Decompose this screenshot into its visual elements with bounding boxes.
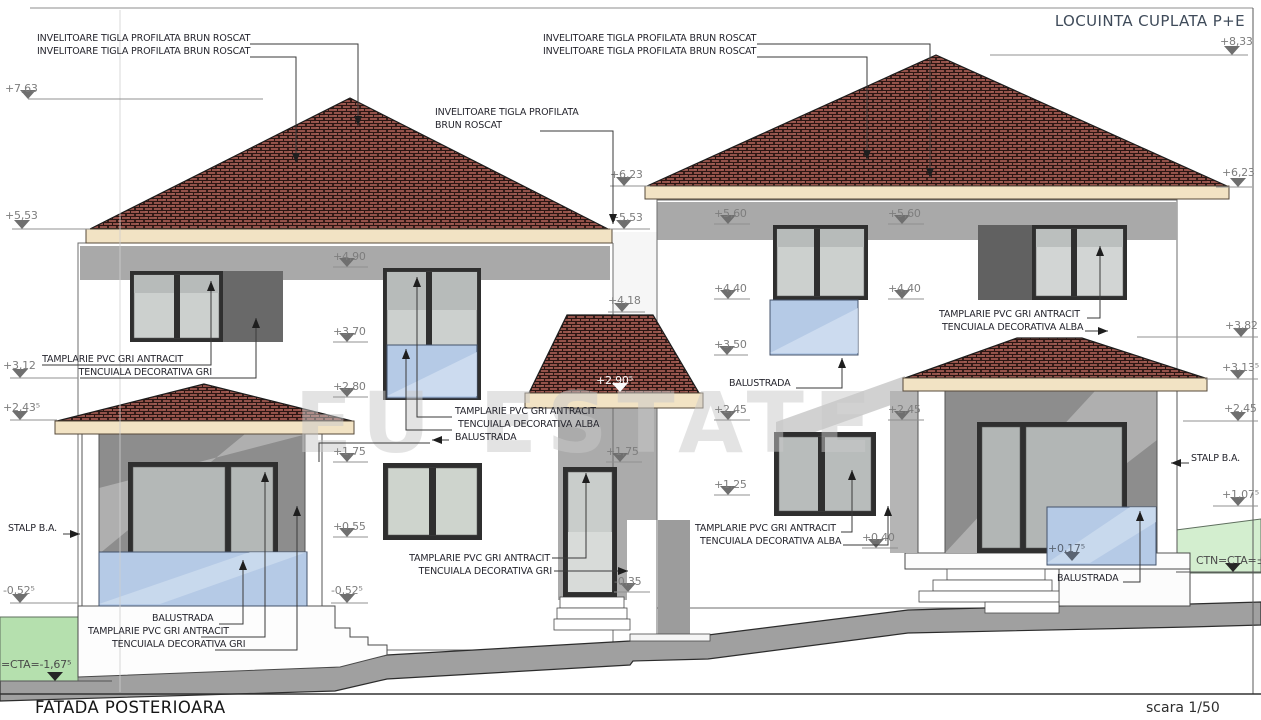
- level-value: +5,53: [5, 209, 38, 222]
- porch-post: [82, 434, 99, 606]
- gap-corner-shadow: [658, 520, 690, 637]
- level-value: +7,63: [5, 82, 38, 95]
- level-value: +5,60: [888, 207, 921, 220]
- annotation-text: TAMPLARIE PVC GRI ANTRACIT: [454, 406, 596, 417]
- annotation-text: BALUSTRADA: [729, 378, 791, 389]
- level-value: +2,90⁵: [596, 374, 633, 387]
- level-value: +4,40: [888, 282, 921, 295]
- annotation-text: TENCUIALA DECORATIVA GRI: [111, 639, 245, 650]
- annotation-text: TENCUIALA DECORATIVA GRI: [78, 367, 212, 378]
- door-glass-light: [568, 532, 612, 592]
- annotation-text: INVELITOARE TIGLA PROFILATA BRUN ROSCAT: [37, 33, 251, 44]
- level-value: +3,82: [1225, 319, 1258, 332]
- level-value: +3,50: [714, 338, 747, 351]
- step: [560, 597, 624, 608]
- porch-door-glass: [982, 427, 1020, 548]
- drawing-title: LOCUINTA CUPLATA P+E: [1055, 12, 1245, 30]
- level-value: +0,55: [333, 520, 366, 533]
- middle-rear-door: [563, 467, 617, 597]
- level-value: +6,23: [1222, 166, 1255, 179]
- level-value: +2,43⁵: [3, 401, 40, 414]
- level-value: +3,70: [333, 325, 366, 338]
- window-mullion: [174, 275, 180, 338]
- window-mullion: [1071, 229, 1077, 296]
- level-value: -0,52⁵: [3, 584, 35, 597]
- step: [933, 580, 1052, 591]
- porch-roof-eave-board: [903, 378, 1207, 391]
- level-value: =CTA=-1,67⁵: [1, 658, 71, 671]
- level-value: +1,75: [606, 445, 639, 458]
- annotation-text: TAMPLARIE PVC GRI ANTRACIT: [408, 553, 550, 564]
- porch-door-glass: [133, 467, 225, 561]
- level-value: +6,23: [610, 168, 643, 181]
- annotation-text: TENCUIALA DECORATIVA ALBA: [941, 322, 1084, 333]
- level-value: CTN=CTA=±: [1196, 554, 1261, 567]
- left-roof-eave-board: [86, 229, 612, 243]
- level-value: +2,45: [1224, 402, 1257, 415]
- annotation-text: INVELITOARE TIGLA PROFILATA BRUN ROSCAT: [543, 46, 757, 57]
- annotation-text: STALP B.A.: [1191, 453, 1240, 464]
- level-value: +4,40: [714, 282, 747, 295]
- level-value: +0,40: [862, 531, 895, 544]
- annotation-text: STALP B.A.: [8, 523, 57, 534]
- window-mullion: [814, 229, 820, 296]
- window-glass-shade: [1036, 229, 1123, 247]
- step: [554, 619, 630, 630]
- level-value: +2,45: [888, 403, 921, 416]
- right-porch: [890, 338, 1207, 565]
- porch-post: [918, 391, 945, 553]
- level-value: +1,75: [333, 445, 366, 458]
- annotation-text: INVELITOARE TIGLA PROFILATA BRUN ROSCAT: [543, 33, 757, 44]
- annotation-text: TAMPLARIE PVC GRI ANTRACIT: [938, 309, 1080, 320]
- annotation-text: BRUN ROSCAT: [435, 120, 502, 131]
- annotation-text: TENCUIALA DECORATIVA ALBA: [699, 536, 842, 547]
- middle-door-steps: [554, 597, 630, 630]
- annotation-text: TAMPLARIE PVC GRI ANTRACIT: [694, 523, 836, 534]
- annotation-text: INVELITOARE TIGLA PROFILATA BRUN ROSCAT: [37, 46, 251, 57]
- level-value: -0,52⁵: [331, 584, 363, 597]
- step: [947, 569, 1045, 580]
- porch-post: [1157, 391, 1177, 553]
- dark-wall-recess: [223, 271, 283, 342]
- step: [985, 602, 1059, 613]
- view-name: FATADA POSTERIOARA: [35, 698, 226, 717]
- level-value: +0,17⁵: [1048, 542, 1085, 555]
- level-value: +5,60: [714, 207, 747, 220]
- annotation-text: INVELITOARE TIGLA PROFILATA: [435, 107, 579, 118]
- annotation-text: TAMPLARIE PVC GRI ANTRACIT: [87, 626, 229, 637]
- annotation-text: BALUSTRADA: [1057, 573, 1119, 584]
- right-roof-eave-board: [645, 186, 1229, 199]
- level-value: -0,35: [614, 575, 642, 588]
- level-value: +4,90: [333, 250, 366, 263]
- level-value: +3,13⁵: [1222, 361, 1259, 374]
- grass-patch-left: [0, 617, 78, 681]
- annotation-text: TAMPLARIE PVC GRI ANTRACIT: [41, 354, 183, 365]
- footing-ledge: [630, 634, 710, 641]
- level-value: +2,45: [714, 403, 747, 416]
- level-value: +1,25: [714, 478, 747, 491]
- annotation-text: TENCUIALA DECORATIVA ALBA: [457, 419, 600, 430]
- window-glass-shade: [777, 229, 864, 247]
- annotation-text: TENCUIALA DECORATIVA GRI: [418, 566, 552, 577]
- step: [557, 608, 627, 619]
- drawing-scale: scara 1/50: [1146, 700, 1220, 716]
- ground-window-mullion: [429, 468, 436, 535]
- annotation-text: BALUSTRADA: [152, 613, 214, 624]
- level-value: +2,80: [333, 380, 366, 393]
- annotation-text: BALUSTRADA: [455, 432, 517, 443]
- step: [919, 591, 1059, 602]
- level-value: +1,07⁵: [1222, 488, 1259, 501]
- level-value: +3,12: [3, 359, 36, 372]
- level-value: +8,33: [1220, 35, 1253, 48]
- level-value: +4,18: [608, 294, 641, 307]
- dark-wall-recess: [978, 225, 1032, 300]
- rear-facade-elevation-drawing: EU ESTATE +7,63+5,53+3,12+2,43⁵-0,52⁵=CT…: [0, 0, 1261, 720]
